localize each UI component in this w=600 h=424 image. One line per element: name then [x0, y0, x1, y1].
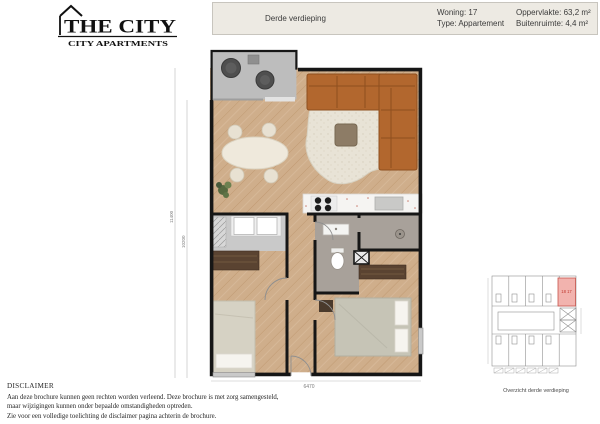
entrance-opening	[291, 372, 311, 378]
logo: THE CITY CITY APARTMENTS	[38, 3, 180, 49]
pillow	[395, 301, 408, 325]
overview-plan: 18 17	[486, 272, 590, 382]
dining-chair	[228, 125, 242, 139]
dimension-height-inner: 10200	[181, 235, 186, 248]
overview-balcony-strip	[494, 368, 558, 373]
floor-label: Derde verdieping	[265, 14, 326, 23]
balcony-door	[265, 97, 295, 102]
disclaimer-block: DISCLAIMER Aan deze brochure kunnen geen…	[7, 382, 427, 421]
washing-machine-icon	[234, 218, 254, 235]
window-bedroom1	[213, 373, 255, 378]
disclaimer-line: maar wijzigingen kunnen onder bepaalde o…	[7, 402, 427, 411]
overview-caption: Overzicht derde verdieping	[466, 388, 600, 394]
overview-highlight-label: 18 17	[561, 289, 572, 294]
dining-table	[222, 137, 288, 169]
logo-roof-icon	[60, 6, 82, 16]
dimension-height-outer: 11400	[169, 210, 174, 223]
logo-title: THE CITY	[64, 17, 176, 38]
pillow	[216, 354, 252, 368]
floor-plan: 11400 10200 6470	[165, 44, 430, 389]
dryer-icon	[257, 218, 277, 235]
disclaimer-line: Aan deze brochure kunnen geen rechten wo…	[7, 393, 427, 402]
header-infobar: Derde verdieping Woning: 17 Type: Appart…	[212, 2, 598, 35]
bed-bedroom1	[213, 301, 255, 373]
coffee-table	[335, 124, 357, 146]
disclaimer-heading: DISCLAIMER	[7, 382, 427, 392]
logo-subtitle: CITY APARTMENTS	[68, 39, 168, 48]
technical-shaft	[213, 217, 226, 247]
pillow	[395, 329, 408, 352]
area-label: Oppervlakte: 63,2 m²	[516, 8, 591, 17]
unit-label: Woning: 17	[437, 8, 477, 17]
installation-shaft	[354, 251, 369, 264]
overview-corridor	[498, 312, 554, 330]
kitchen-counter	[303, 194, 422, 213]
outdoor-label: Buitenruimte: 4,4 m²	[516, 19, 588, 28]
type-label: Type: Appartement	[437, 19, 504, 28]
wardrobe-bedroom1	[211, 251, 259, 270]
wardrobe-bedroom2	[359, 265, 406, 279]
balcony-table-icon	[248, 55, 259, 64]
toilet-icon	[331, 253, 344, 270]
kitchen-sink-icon	[375, 197, 403, 210]
shower-room-floor	[359, 214, 422, 250]
dining-chair	[230, 168, 244, 182]
window-bedroom2	[419, 328, 424, 354]
disclaimer-line: Zie voor een volledige toelichting de di…	[7, 412, 427, 421]
dining-chair	[262, 123, 276, 137]
balcony	[212, 51, 297, 102]
brochure-page: THE CITY CITY APARTMENTS Derde verdiepin…	[0, 0, 600, 424]
dining-chair	[264, 169, 278, 183]
nightstand	[319, 300, 333, 312]
